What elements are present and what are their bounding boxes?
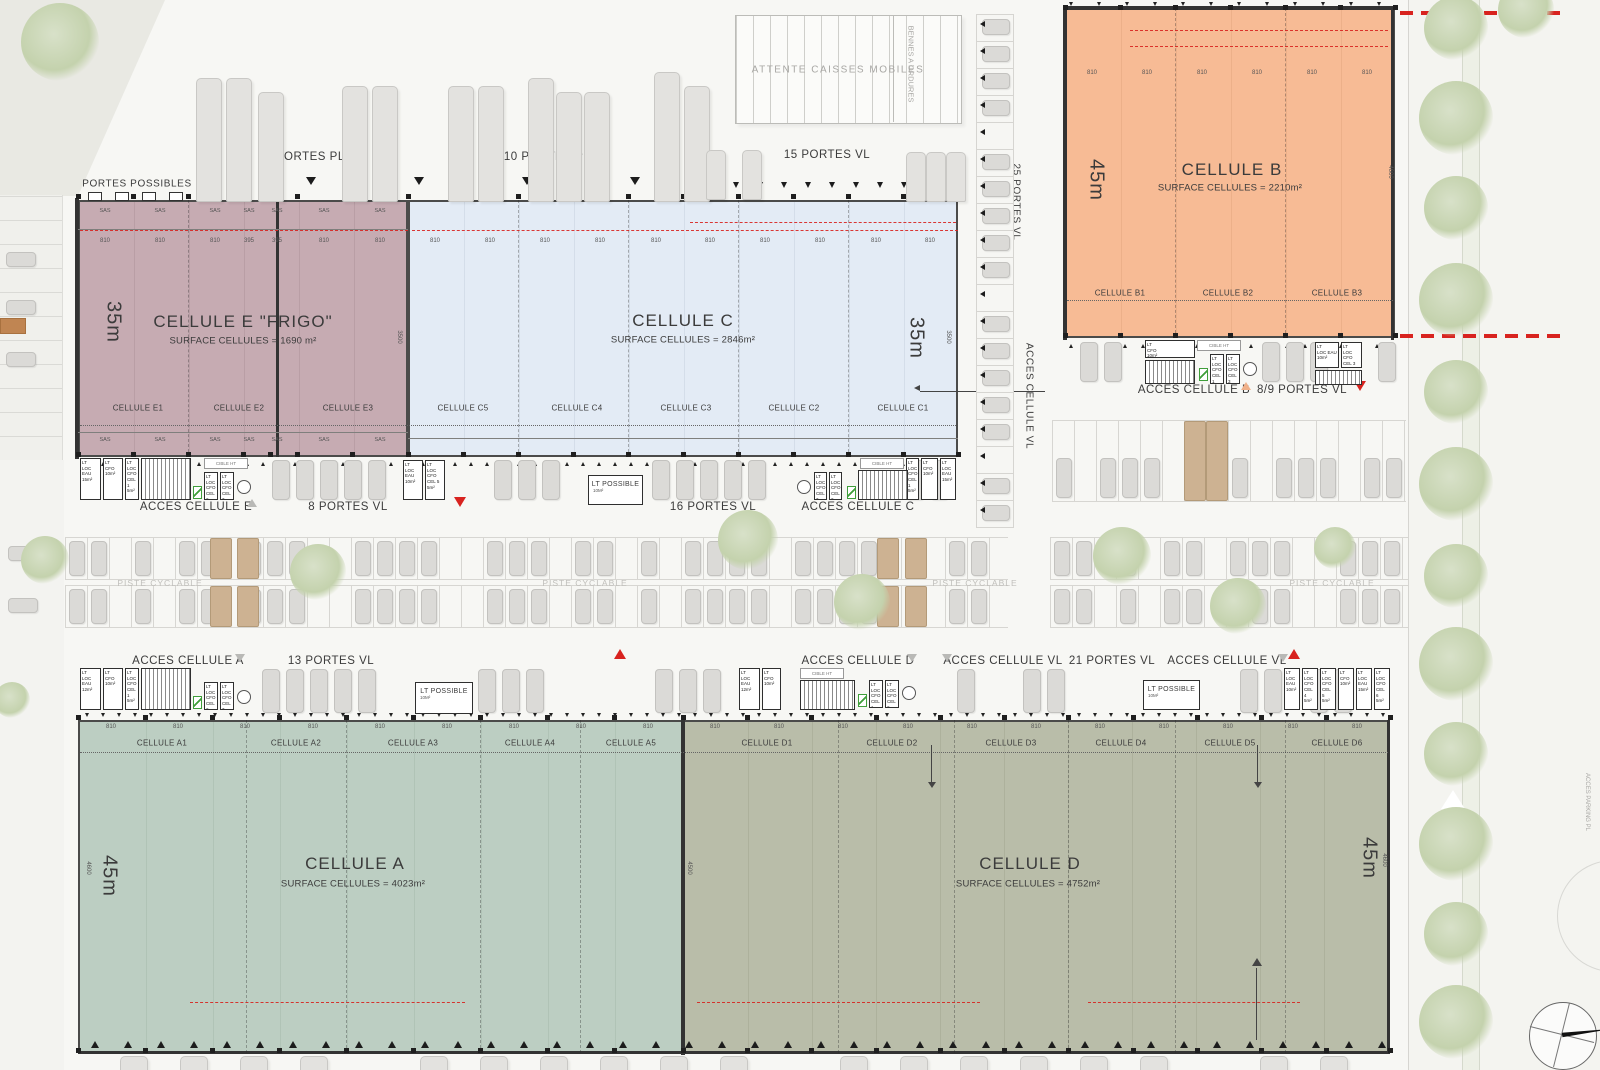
facade-tick bbox=[791, 194, 796, 199]
parked-car bbox=[509, 589, 525, 624]
parked-car bbox=[509, 541, 525, 576]
dock-arrow-icon bbox=[1109, 713, 1113, 717]
wall-d-bottom bbox=[683, 1051, 1390, 1054]
staircase bbox=[1145, 360, 1195, 384]
dock-arrow-icon bbox=[685, 1041, 693, 1048]
dock-arrow-icon bbox=[197, 713, 201, 717]
parked-car bbox=[1056, 458, 1072, 498]
truck-trailer bbox=[342, 86, 368, 202]
facade-tick bbox=[571, 452, 576, 457]
lt-room: LT LOC CFO CEL 3 5m² bbox=[220, 682, 234, 710]
truck-trailer bbox=[556, 92, 582, 202]
parked-car bbox=[1364, 458, 1380, 498]
truck-trailer bbox=[180, 1056, 208, 1070]
truck-trailer bbox=[478, 86, 504, 202]
stall-arrow-icon bbox=[980, 507, 985, 513]
parking-stall bbox=[976, 284, 1014, 312]
dock-arrow-icon bbox=[805, 182, 811, 188]
subcell-label: CELLULE A3 bbox=[388, 739, 438, 748]
parked-van bbox=[310, 669, 328, 713]
dock-arrow-icon bbox=[784, 1041, 792, 1048]
cellule-c-surface: SURFACE CELLULES = 2846m² bbox=[611, 335, 755, 346]
parked-van bbox=[478, 669, 496, 713]
dimension-label: 810 bbox=[1087, 70, 1097, 76]
stall-arrow-icon bbox=[980, 399, 985, 405]
stall-arrow-icon bbox=[980, 345, 985, 351]
subcell-label: CELLULE B2 bbox=[1203, 289, 1254, 298]
dimension-label: 810 bbox=[106, 724, 116, 730]
parked-car bbox=[641, 589, 657, 624]
reserved-stall bbox=[905, 538, 927, 579]
dock-arrow-icon bbox=[469, 462, 473, 466]
dock-arrow-icon bbox=[581, 713, 585, 717]
lt-room: LT LOC EAU 12m² bbox=[80, 668, 101, 710]
label-piste-cyclable: PISTE CYCLABLE bbox=[117, 578, 202, 588]
dock-arrow-icon bbox=[1077, 713, 1081, 717]
dimension-label: 810 bbox=[1159, 724, 1169, 730]
cellule-a-depth: 45m bbox=[98, 855, 121, 897]
parked-car bbox=[531, 589, 547, 624]
parked-car bbox=[135, 541, 151, 576]
dock-arrow-icon bbox=[1377, 2, 1381, 6]
subcell-label: CELLULE D5 bbox=[1204, 739, 1255, 748]
truck-trailer bbox=[584, 92, 610, 202]
parked-car bbox=[6, 300, 36, 315]
truck-trailer bbox=[660, 1056, 688, 1070]
truck-trailer bbox=[1080, 1056, 1108, 1070]
fire-separation-line bbox=[690, 222, 956, 223]
dimension-label: 810 bbox=[155, 238, 165, 244]
tree bbox=[1210, 578, 1266, 634]
parked-car bbox=[795, 589, 811, 624]
dock-arrow-icon bbox=[661, 713, 665, 717]
parked-car bbox=[1120, 589, 1136, 624]
facade-tick bbox=[411, 1048, 416, 1053]
facade-tick bbox=[277, 1048, 282, 1053]
dimension-label: 810 bbox=[815, 238, 825, 244]
parked-van bbox=[542, 460, 560, 500]
cellule-a-title: CELLULE A bbox=[305, 854, 405, 874]
wall-a-d-divider bbox=[681, 718, 685, 1055]
wall-b-left bbox=[1063, 6, 1067, 340]
sas-label: SAS bbox=[154, 208, 165, 214]
subcell-label: CELLULE D1 bbox=[741, 739, 792, 748]
lt-possible-label: LT POSSIBLE bbox=[416, 688, 472, 695]
parked-car bbox=[1274, 589, 1290, 624]
facade-tick bbox=[76, 1048, 81, 1053]
facade-tick bbox=[516, 194, 521, 199]
facade-tick bbox=[791, 452, 796, 457]
parked-car bbox=[1144, 458, 1160, 498]
dock-arrow-icon bbox=[1015, 1041, 1023, 1048]
parked-car bbox=[982, 235, 1010, 251]
arrow-line bbox=[931, 745, 932, 782]
stall-arrow-icon bbox=[980, 237, 985, 243]
dimension-label: 810 bbox=[1362, 70, 1372, 76]
dock-arrow-icon bbox=[629, 462, 633, 466]
sas-label: SAS bbox=[99, 208, 110, 214]
lt-room: LT CFO 10m² bbox=[1145, 340, 1195, 358]
possible-door bbox=[115, 192, 129, 201]
facade-tick bbox=[681, 1048, 686, 1053]
circle-marker bbox=[1243, 362, 1257, 376]
dock-arrow-icon bbox=[837, 713, 841, 717]
parked-car bbox=[575, 541, 591, 576]
parked-car bbox=[399, 541, 415, 576]
facade-tick bbox=[1283, 5, 1288, 10]
dock-arrow-icon bbox=[190, 1041, 198, 1048]
cellule-c-depth: 35m bbox=[905, 317, 928, 359]
lt-room: LT LOC EAU 15m² bbox=[1356, 668, 1372, 710]
dock-arrow-icon bbox=[781, 182, 787, 188]
dock-arrow-icon bbox=[805, 462, 809, 466]
parked-van bbox=[518, 460, 536, 500]
lt-room: LT LOC CFO CEL 1 5m² bbox=[869, 680, 883, 708]
dock-arrow-icon bbox=[1317, 713, 1321, 717]
dimension-label: 810 bbox=[430, 238, 440, 244]
truck-trailer bbox=[926, 152, 946, 202]
dock-arrow-icon bbox=[805, 713, 809, 717]
stall-arrow-icon bbox=[980, 264, 985, 270]
dock-arrow-icon bbox=[501, 713, 505, 717]
dock-arrow-icon bbox=[733, 182, 739, 188]
dock-arrow-icon bbox=[520, 1041, 528, 1048]
dimension-label: 810 bbox=[1223, 724, 1233, 730]
dock-arrow-icon bbox=[1013, 713, 1017, 717]
facade-tick bbox=[1393, 5, 1398, 10]
facade-tick bbox=[344, 1048, 349, 1053]
parked-car bbox=[1186, 589, 1202, 624]
dock-arrow-icon bbox=[1265, 2, 1269, 6]
dimension-label: 810 bbox=[871, 238, 881, 244]
lt-room: LT LOC CFO CEL 1 5m² bbox=[125, 458, 139, 500]
lt-room: LT CFO 10m² bbox=[921, 458, 938, 500]
tree bbox=[834, 574, 890, 630]
label-8-portes-vl: 8 PORTES VL bbox=[308, 501, 387, 513]
parked-car bbox=[575, 589, 591, 624]
subcell-divider bbox=[246, 720, 247, 1053]
sas-label: SAS bbox=[154, 437, 165, 443]
parked-car bbox=[971, 589, 987, 624]
facade-tick bbox=[1002, 715, 1007, 720]
dock-arrow-icon bbox=[1237, 2, 1241, 6]
facade-tick bbox=[411, 715, 416, 720]
reserved-stall bbox=[237, 538, 259, 579]
circle-marker bbox=[797, 480, 811, 494]
parked-car bbox=[982, 424, 1010, 440]
stall-arrow-icon bbox=[980, 156, 985, 162]
parked-van bbox=[1047, 669, 1065, 713]
dimension-label: 810 bbox=[1307, 70, 1317, 76]
parked-car bbox=[179, 541, 195, 576]
parked-car bbox=[377, 541, 393, 576]
truck-trailer bbox=[196, 78, 222, 202]
truck-trailer bbox=[540, 1056, 568, 1070]
dock-arrow-icon bbox=[389, 713, 393, 717]
subcell-divider bbox=[838, 720, 839, 1053]
dimension-label: 810 bbox=[319, 238, 329, 244]
tree bbox=[21, 3, 99, 81]
dock-arrow-icon bbox=[853, 182, 859, 188]
truck-trailer bbox=[960, 1056, 988, 1070]
parked-car bbox=[982, 100, 1010, 116]
parked-car bbox=[1164, 541, 1180, 576]
dock-arrow-icon bbox=[197, 462, 201, 466]
tree bbox=[1419, 627, 1493, 701]
dock-arrow-icon bbox=[1321, 2, 1325, 6]
truck-trailer bbox=[300, 1056, 328, 1070]
tree bbox=[1424, 360, 1488, 424]
dock-arrow-icon bbox=[597, 713, 601, 717]
subcell-label: CELLULE D4 bbox=[1095, 739, 1146, 748]
parked-car bbox=[421, 589, 437, 624]
lt-room: LT LOC CFO CEL 5 5m² bbox=[1320, 668, 1336, 710]
tree bbox=[290, 544, 346, 600]
lt-possible-sub: 10M² bbox=[1144, 693, 1199, 698]
circle-marker bbox=[237, 480, 251, 494]
label-acces-cellule-a: ACCES CELLULE A bbox=[132, 655, 244, 667]
dim-4500-ad: 4500 bbox=[686, 861, 692, 874]
parked-car bbox=[982, 343, 1010, 359]
parked-car bbox=[982, 370, 1010, 386]
parked-car bbox=[1298, 458, 1314, 498]
dock-arrow-icon bbox=[485, 462, 489, 466]
wall-a-bottom bbox=[78, 1051, 683, 1054]
reserved-stall bbox=[210, 538, 232, 579]
parked-car bbox=[1076, 589, 1092, 624]
dimension-label: 810 bbox=[595, 238, 605, 244]
left-accent-block bbox=[0, 318, 26, 334]
dock-arrow-icon bbox=[1125, 713, 1129, 717]
facade-tick bbox=[1002, 1048, 1007, 1053]
fire-separation-line bbox=[697, 1002, 980, 1003]
cellule-d-title: CELLULE D bbox=[979, 854, 1081, 874]
parked-car bbox=[982, 505, 1010, 521]
dimension-label: 810 bbox=[967, 724, 977, 730]
lt-room: LT LOC CFO CEL 2 5m² bbox=[204, 682, 218, 710]
label-acces-cellule-vl-1: ACCES CELLULE VL bbox=[943, 655, 1062, 667]
parked-car bbox=[69, 589, 85, 624]
cible-ht-label: CIBLE HT bbox=[800, 668, 844, 679]
subcell-label: CELLULE C1 bbox=[877, 404, 928, 413]
parked-car bbox=[685, 589, 701, 624]
dock-arrow-icon bbox=[388, 1041, 396, 1048]
dock-arrow-icon bbox=[1125, 2, 1129, 6]
facade-tick bbox=[938, 1048, 943, 1053]
subcell-divider bbox=[346, 720, 347, 1053]
dimension-label: 810 bbox=[442, 724, 452, 730]
facade-tick bbox=[626, 452, 631, 457]
subcell-line-b bbox=[1067, 300, 1393, 301]
lt-room: LT CFO 10m² bbox=[762, 668, 781, 710]
dock-arrow-icon bbox=[1213, 1041, 1221, 1048]
dock-arrow-icon bbox=[718, 1041, 726, 1048]
dim-3500-e: 3500 bbox=[396, 330, 402, 343]
staircase bbox=[141, 458, 191, 500]
facade-tick bbox=[1228, 5, 1233, 10]
dock-arrow-icon bbox=[1061, 713, 1065, 717]
dock-arrow-icon bbox=[613, 713, 617, 717]
parked-car bbox=[949, 541, 965, 576]
sas-label: SAS bbox=[243, 208, 254, 214]
lt-room: LT LOC CFO CEL 2 5m² bbox=[885, 680, 899, 708]
facade-tick bbox=[1173, 333, 1178, 338]
dimension-label: 395 bbox=[244, 238, 254, 244]
dimension-label: 810 bbox=[576, 724, 586, 730]
dock-arrow-icon bbox=[117, 713, 121, 717]
parked-van bbox=[1262, 342, 1280, 382]
dock-arrow-icon bbox=[565, 713, 569, 717]
dock-arrow-icon bbox=[741, 713, 745, 717]
sas-label: SAS bbox=[271, 208, 282, 214]
dock-arrow-icon bbox=[629, 713, 633, 717]
dock-arrow-icon bbox=[1237, 713, 1241, 717]
dock-arrow-icon bbox=[652, 1041, 660, 1048]
label-portes-possibles: PORTES POSSIBLES bbox=[82, 179, 191, 190]
dock-arrow-icon bbox=[850, 1041, 858, 1048]
parked-car bbox=[817, 589, 833, 624]
parked-car bbox=[982, 73, 1010, 89]
facade-tick bbox=[210, 1048, 215, 1053]
facade-tick bbox=[406, 194, 411, 199]
stall-arrow-icon bbox=[980, 318, 985, 324]
subcell-divider bbox=[954, 720, 955, 1053]
parked-van bbox=[679, 669, 697, 713]
parked-van bbox=[286, 669, 304, 713]
dock-arrow-icon bbox=[341, 713, 345, 717]
lt-room: LT LOC EAU 15m² bbox=[80, 458, 101, 500]
dim-4600-d: 4600 bbox=[1381, 853, 1387, 866]
lt-room: LT LOC CFO CEL 1 5m² bbox=[1210, 354, 1224, 384]
dock-arrow-icon bbox=[1157, 713, 1161, 717]
dock-arrow-icon bbox=[757, 713, 761, 717]
dimension-label: 810 bbox=[540, 238, 550, 244]
facade-tick bbox=[241, 452, 246, 457]
facade-tick bbox=[846, 452, 851, 457]
lt-room: LT LOC CFO CEL 1 5m² bbox=[125, 668, 139, 710]
dock-arrow-icon bbox=[933, 713, 937, 717]
possible-door bbox=[88, 192, 102, 201]
parked-car bbox=[685, 541, 701, 576]
parked-car bbox=[1232, 458, 1248, 498]
reserved-stall bbox=[1184, 421, 1206, 501]
dock-arrow-icon bbox=[1081, 1041, 1089, 1048]
dock-arrow-icon bbox=[853, 462, 857, 466]
lt-room: LT CFO 10m² bbox=[103, 668, 123, 710]
parked-car bbox=[982, 181, 1010, 197]
facade-tick bbox=[1388, 715, 1393, 720]
dock-arrow-icon bbox=[829, 182, 835, 188]
stall-arrow-icon bbox=[980, 129, 985, 135]
label-8-9-portes-vl: 8/9 PORTES VL bbox=[1257, 384, 1347, 396]
parked-van bbox=[1023, 669, 1041, 713]
parked-car bbox=[487, 589, 503, 624]
cible-ht-label: CIBLE HT bbox=[204, 458, 248, 469]
cellule-d-depth: 45m bbox=[1358, 837, 1381, 879]
parked-car bbox=[6, 352, 36, 367]
parked-car bbox=[1384, 589, 1400, 624]
parked-car bbox=[1186, 541, 1202, 576]
facade-tick bbox=[268, 452, 273, 457]
dock-arrow-icon bbox=[619, 1041, 627, 1048]
sas-label: SAS bbox=[99, 437, 110, 443]
label-piste-cyclable: PISTE CYCLABLE bbox=[542, 578, 627, 588]
stall-arrow-icon bbox=[980, 183, 985, 189]
dock-arrow-icon bbox=[1269, 713, 1273, 717]
sas-label: SAS bbox=[209, 208, 220, 214]
parked-van bbox=[676, 460, 694, 500]
parked-car bbox=[91, 589, 107, 624]
parked-van bbox=[957, 669, 975, 713]
dock-arrow-icon bbox=[677, 713, 681, 717]
parked-van bbox=[1080, 342, 1098, 382]
parked-van bbox=[320, 460, 338, 500]
label-acces-cellule-e: ACCES CELLULE E bbox=[140, 501, 252, 513]
facade-tick bbox=[1063, 333, 1068, 338]
facade-tick bbox=[1118, 5, 1123, 10]
dock-arrow-icon bbox=[901, 713, 905, 717]
parked-van bbox=[272, 460, 290, 500]
dim-3500-c: 3500 bbox=[945, 330, 951, 343]
facade-tick bbox=[350, 452, 355, 457]
parked-car bbox=[982, 208, 1010, 224]
staircase bbox=[1315, 370, 1362, 385]
subcell-divider bbox=[480, 720, 481, 1053]
reserved-stall bbox=[905, 586, 927, 627]
stall-arrow-icon bbox=[980, 372, 985, 378]
parked-car bbox=[135, 589, 151, 624]
inner-line-c-bottom bbox=[408, 438, 958, 439]
dock-arrow-icon bbox=[101, 713, 105, 717]
parked-car bbox=[751, 589, 767, 624]
lt-room: LT LOC CFO CEL 5 5m² bbox=[425, 460, 445, 500]
subcell-divider bbox=[848, 200, 849, 457]
dimension-label: 810 bbox=[210, 238, 220, 244]
parked-car bbox=[1274, 541, 1290, 576]
dimension-label: 810 bbox=[1031, 724, 1041, 730]
parked-van bbox=[703, 669, 721, 713]
dimension-label: 810 bbox=[485, 238, 495, 244]
facade-tick bbox=[809, 1048, 814, 1053]
parking-stall bbox=[976, 446, 1014, 474]
dock-arrow-icon bbox=[853, 713, 857, 717]
parked-car bbox=[531, 541, 547, 576]
parked-car bbox=[1076, 541, 1092, 576]
parked-van bbox=[344, 460, 362, 500]
facade-tick bbox=[478, 715, 483, 720]
lt-room: LT LOC CFO CEL 3 5m² bbox=[814, 472, 827, 500]
dock-arrow-icon bbox=[256, 1041, 264, 1048]
parked-van bbox=[748, 460, 766, 500]
parked-car bbox=[982, 262, 1010, 278]
parked-van bbox=[526, 669, 544, 713]
cellule-e-title: CELLULE E "FRIGO" bbox=[153, 312, 332, 332]
parked-car bbox=[982, 478, 1010, 494]
parked-car bbox=[1386, 458, 1402, 498]
dock-arrow-icon bbox=[1249, 344, 1253, 348]
door-icon bbox=[847, 486, 856, 499]
tree bbox=[1419, 447, 1493, 521]
label-attente-caisses: ATTENTE CAISSES MOBILES bbox=[752, 65, 925, 76]
facade-tick bbox=[1324, 715, 1329, 720]
parked-car bbox=[399, 589, 415, 624]
parked-car bbox=[421, 541, 437, 576]
facade-tick bbox=[406, 452, 411, 457]
parked-van bbox=[1286, 342, 1304, 382]
subcell-label: CELLULE C2 bbox=[768, 404, 819, 413]
parked-car bbox=[729, 589, 745, 624]
subcell-divider bbox=[628, 200, 629, 457]
